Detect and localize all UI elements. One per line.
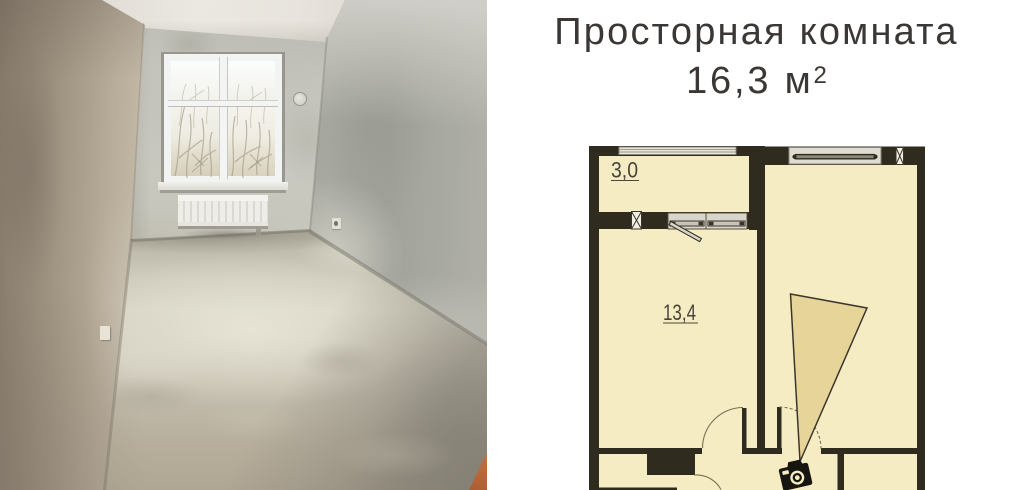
svg-text:3,0: 3,0	[611, 158, 638, 183]
svg-text:13,4: 13,4	[663, 300, 696, 325]
